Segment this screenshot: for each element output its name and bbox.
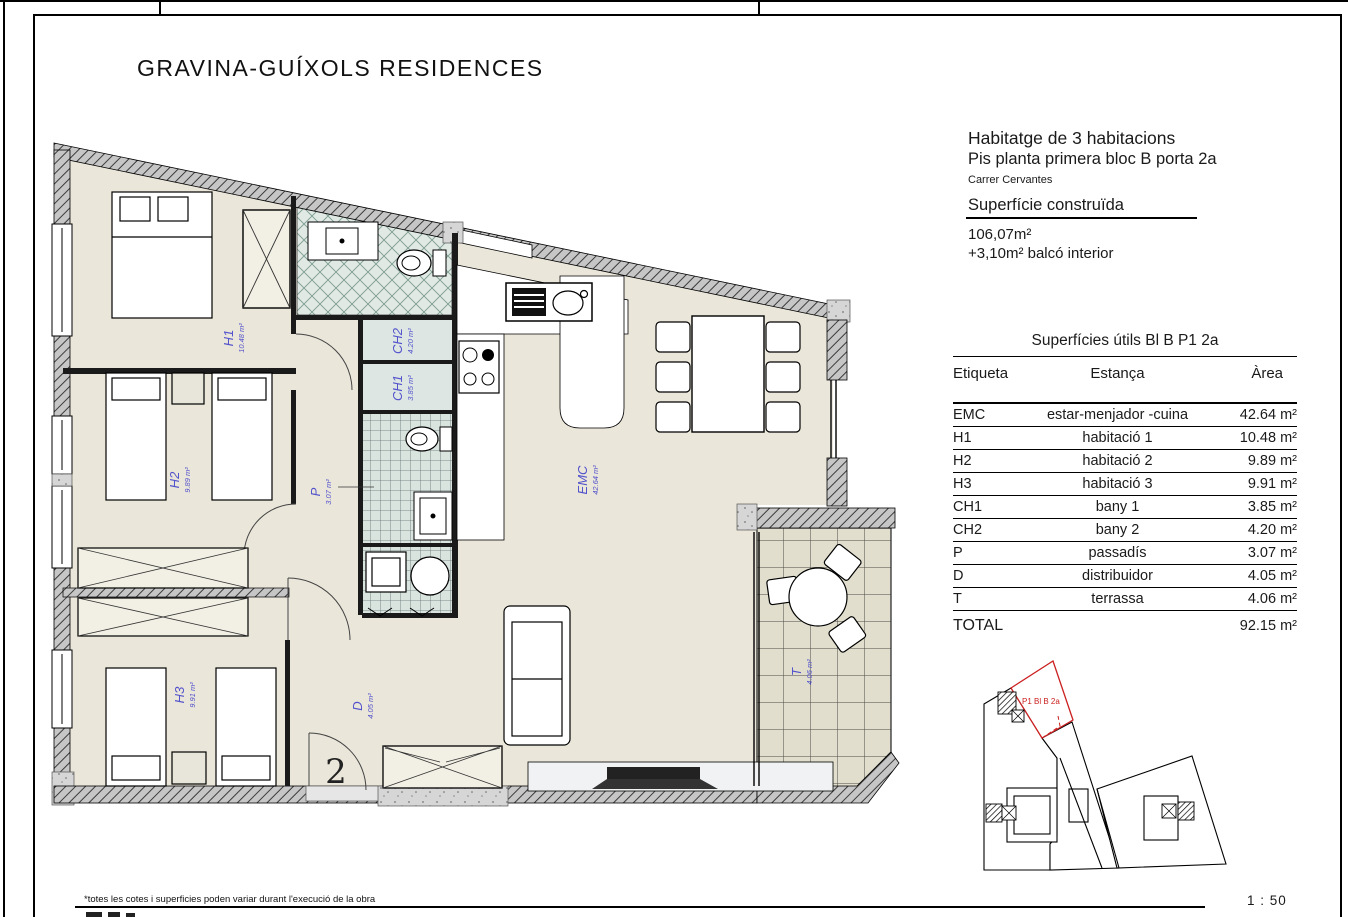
pillar: [52, 474, 72, 486]
entry-sill: [378, 786, 508, 806]
stove: [459, 341, 499, 393]
room-name: estar-menjador -cuina: [1033, 407, 1202, 423]
total-label: TOTAL: [953, 617, 1033, 635]
key-plan: P1 Bl B 2a: [962, 646, 1242, 874]
built-area-value: 106,07m²: [968, 226, 1031, 243]
room-tag: D: [953, 568, 1033, 584]
wall-right-upper: [827, 320, 847, 380]
bed-double-h1: [112, 192, 212, 318]
sheet-left-edge: [3, 0, 5, 917]
table-row: CH1 bany 1 3.85 m²: [953, 496, 1297, 519]
room-tag: CH1: [953, 499, 1033, 515]
unit-subheading: Pis planta primera bloc B porta 2a: [968, 150, 1217, 169]
page-title: GRAVINA-GUÍXOLS RESIDENCES: [137, 55, 544, 82]
table-row: T terrassa 4.06 m²: [953, 588, 1297, 611]
room-name: distribuidor: [1033, 568, 1202, 584]
room-area: 3.07 m²: [1202, 545, 1297, 561]
terrace-floor: [757, 528, 891, 788]
room-tag: H3: [953, 476, 1033, 492]
areas-table-rows: EMC estar-menjador -cuina 42.64 m² H1 ha…: [953, 402, 1297, 639]
table-row: P passadís 3.07 m²: [953, 542, 1297, 565]
wardrobe-divider-wall: [63, 588, 289, 597]
room-name: habitació 2: [1033, 453, 1202, 469]
table-row: EMC estar-menjador -cuina 42.64 m²: [953, 404, 1297, 427]
table-row: CH2 bany 2 4.20 m²: [953, 519, 1297, 542]
frame-left: [33, 14, 35, 917]
column-header: Àrea: [1202, 365, 1297, 382]
svg-text:4.20 m²: 4.20 m²: [406, 328, 415, 354]
areas-table: Superfícies útils Bl B P1 2a Etiqueta Es…: [953, 332, 1297, 639]
svg-text:9.91 m²: 9.91 m²: [188, 682, 197, 708]
room-tag: EMC: [953, 407, 1033, 423]
room-label-emc: EMC 42.64 m²: [575, 465, 600, 495]
room-tag: H1: [953, 430, 1033, 446]
svg-text:42.64 m²: 42.64 m²: [591, 465, 600, 495]
sheet-top-edge: [0, 0, 1348, 2]
svg-text:3.85 m²: 3.85 m²: [406, 375, 415, 401]
cropped-text-fragment: [108, 912, 120, 917]
scale-label: 1 : 50: [1247, 893, 1287, 908]
room-tag: P: [953, 545, 1033, 561]
svg-text:3.07 m²: 3.07 m²: [324, 479, 333, 505]
sofa: [504, 606, 570, 745]
room-area: 4.20 m²: [1202, 522, 1297, 538]
svg-text:P: P: [308, 487, 323, 496]
room-area: 9.91 m²: [1202, 476, 1297, 492]
total-area: 92.15 m²: [1202, 618, 1297, 634]
svg-text:CH1: CH1: [390, 375, 405, 401]
pillar: [737, 504, 757, 530]
frame-top: [33, 14, 1342, 16]
table-row: H2 habitació 2 9.89 m²: [953, 450, 1297, 473]
wall-terrace-top: [750, 508, 895, 528]
built-area-title: Superfície construïda: [968, 196, 1124, 215]
room-area: 10.48 m²: [1202, 430, 1297, 446]
room-area: 4.05 m²: [1202, 568, 1297, 584]
floor-plan: H1 10.48 m² H2 9.89 m² H3 9.91 m² CH2 4.…: [36, 136, 916, 812]
wall-right-lower: [827, 458, 847, 506]
areas-table-header: Etiqueta Estança Àrea: [953, 362, 1297, 384]
room-area: 4.06 m²: [1202, 591, 1297, 607]
svg-text:T: T: [789, 667, 804, 676]
room-tag: T: [953, 591, 1033, 607]
svg-text:H2: H2: [167, 471, 182, 488]
kitchen-sink: [506, 283, 592, 321]
drawing-sheet: GRAVINA-GUÍXOLS RESIDENCES: [0, 0, 1348, 917]
frame-right: [1340, 14, 1342, 917]
room-name: terrassa: [1033, 591, 1202, 607]
cropped-text-fragment: [126, 913, 135, 917]
room-area: 42.64 m²: [1202, 407, 1297, 423]
column-header: Etiqueta: [953, 365, 1033, 382]
column-header: Estança: [1033, 365, 1202, 382]
pillar: [827, 300, 850, 322]
unit-heading: Habitatge de 3 habitacions: [968, 128, 1175, 149]
svg-text:EMC: EMC: [575, 465, 590, 495]
top-tick-1: [159, 0, 161, 15]
entry-number: 2: [325, 752, 347, 792]
footnote: *totes les cotes i superficies poden var…: [84, 894, 375, 905]
dining-set: [656, 316, 800, 432]
svg-text:D: D: [350, 701, 365, 710]
keyplan-unit-label: P1 Bl B 2a: [1022, 697, 1060, 706]
balcony-area-value: +3,10m² balcó interior: [968, 245, 1114, 262]
top-tick-2: [758, 0, 760, 15]
cropped-text-fragment: [86, 912, 102, 917]
room-area: 3.85 m²: [1202, 499, 1297, 515]
room-name: bany 2: [1033, 522, 1202, 538]
room-name: bany 1: [1033, 499, 1202, 515]
wardrobe-h1: [243, 210, 290, 308]
svg-text:9.89 m²: 9.89 m²: [183, 467, 192, 493]
footnote-underline: [75, 906, 1205, 908]
room-name: habitació 1: [1033, 430, 1202, 446]
room-label-ch2: CH2 4.20 m²: [390, 327, 415, 354]
svg-text:H1: H1: [221, 330, 236, 347]
room-label-ch1: CH1 3.85 m²: [390, 375, 415, 401]
room-name: habitació 3: [1033, 476, 1202, 492]
table-row: D distribuidor 4.05 m²: [953, 565, 1297, 588]
svg-text:10.48 m²: 10.48 m²: [237, 323, 246, 353]
svg-text:4.05 m²: 4.05 m²: [366, 693, 375, 719]
table-total-row: TOTAL 92.15 m²: [953, 613, 1297, 639]
areas-table-title: Superfícies útils Bl B P1 2a: [953, 332, 1297, 357]
svg-text:4.06 m²: 4.06 m²: [805, 659, 814, 685]
room-tag: CH2: [953, 522, 1033, 538]
svg-text:CH2: CH2: [390, 327, 405, 354]
entry-wardrobe: [383, 746, 502, 788]
table-row: H1 habitació 1 10.48 m²: [953, 427, 1297, 450]
room-name: passadís: [1033, 545, 1202, 561]
room-tag: H2: [953, 453, 1033, 469]
table-row: H3 habitació 3 9.91 m²: [953, 473, 1297, 496]
unit-address: Carrer Cervantes: [968, 174, 1052, 186]
tv-unit: [528, 762, 833, 791]
svg-text:H3: H3: [172, 686, 187, 703]
built-area-underline: [966, 217, 1197, 219]
room-area: 9.89 m²: [1202, 453, 1297, 469]
